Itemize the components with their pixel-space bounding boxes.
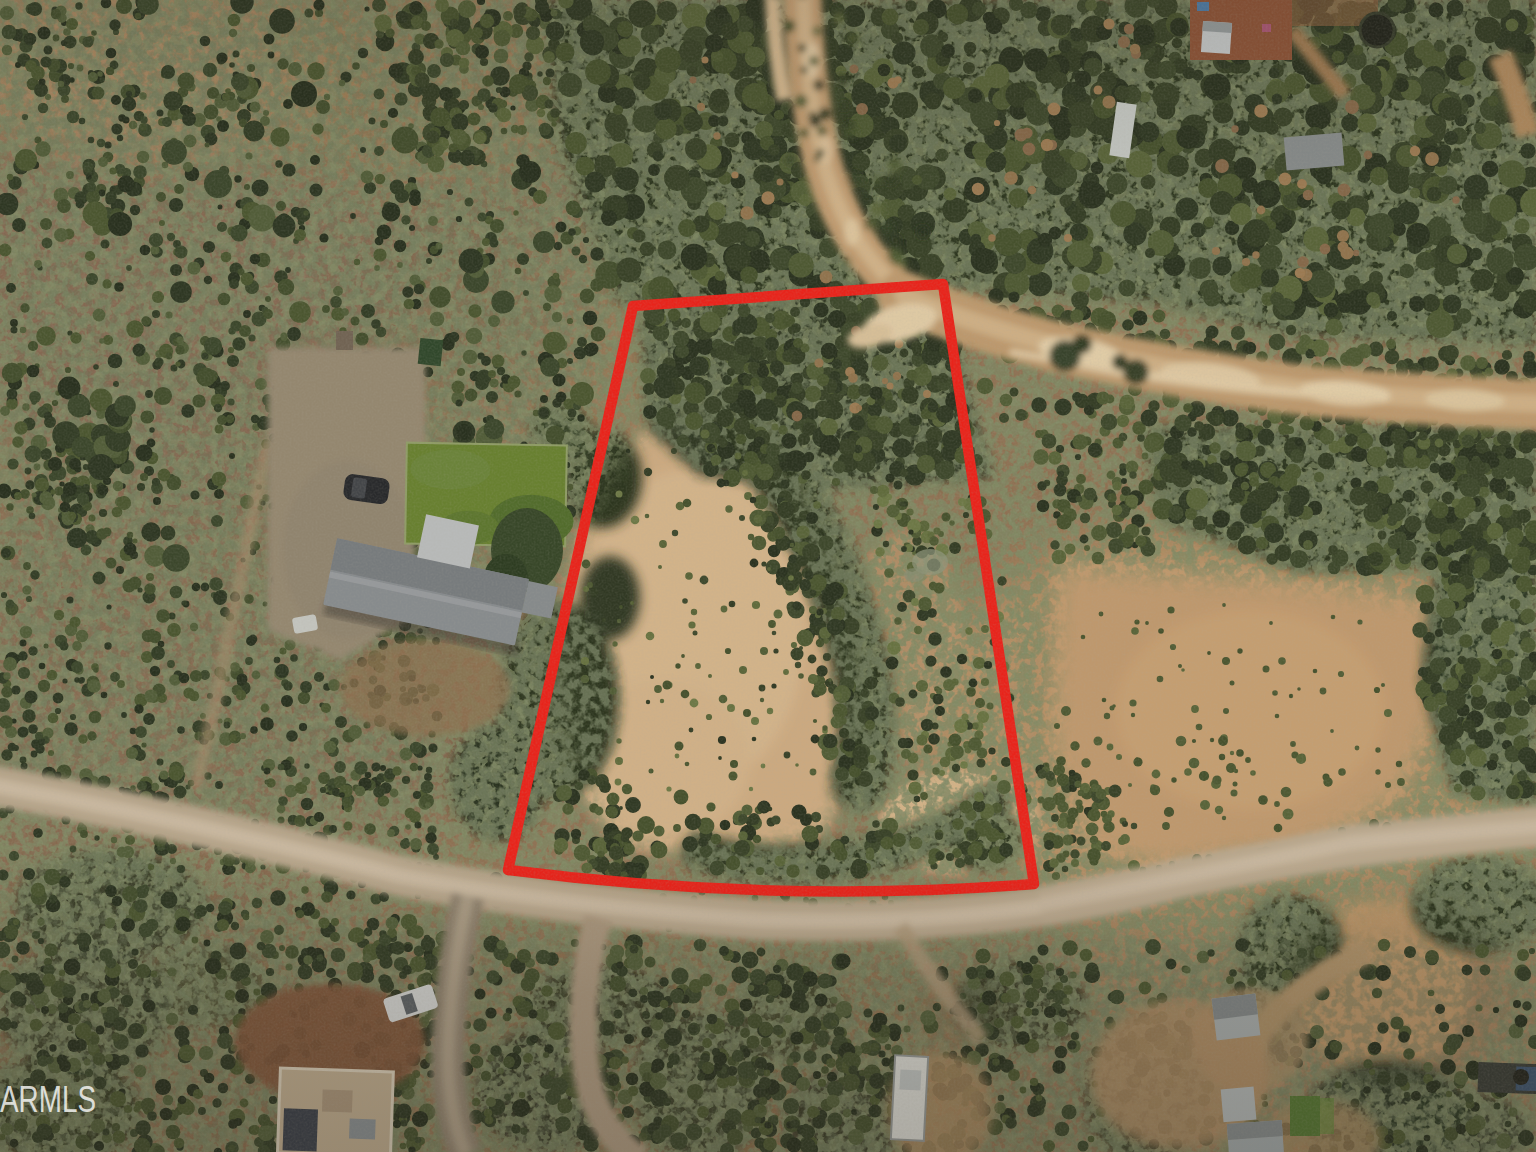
svg-text:ARMLS: ARMLS xyxy=(0,1079,96,1120)
